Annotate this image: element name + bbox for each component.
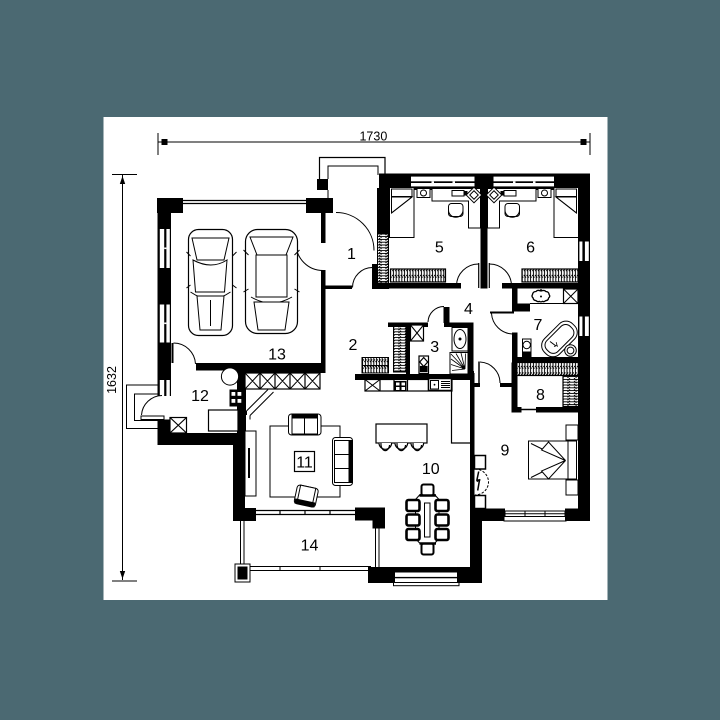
- svg-text:5: 5: [435, 240, 444, 257]
- svg-text:11: 11: [296, 455, 313, 472]
- svg-text:14: 14: [301, 538, 319, 555]
- svg-text:13: 13: [268, 347, 286, 364]
- svg-text:12: 12: [191, 388, 209, 405]
- svg-text:1632: 1632: [105, 366, 119, 394]
- svg-text:8: 8: [536, 387, 545, 404]
- svg-text:9: 9: [501, 443, 510, 460]
- svg-text:10: 10: [422, 461, 440, 478]
- svg-text:1: 1: [347, 246, 356, 263]
- svg-text:4: 4: [464, 301, 473, 318]
- svg-text:6: 6: [526, 240, 535, 257]
- svg-text:2: 2: [348, 337, 357, 354]
- svg-text:7: 7: [534, 317, 543, 334]
- svg-text:1730: 1730: [359, 130, 387, 144]
- svg-text:3: 3: [430, 339, 439, 356]
